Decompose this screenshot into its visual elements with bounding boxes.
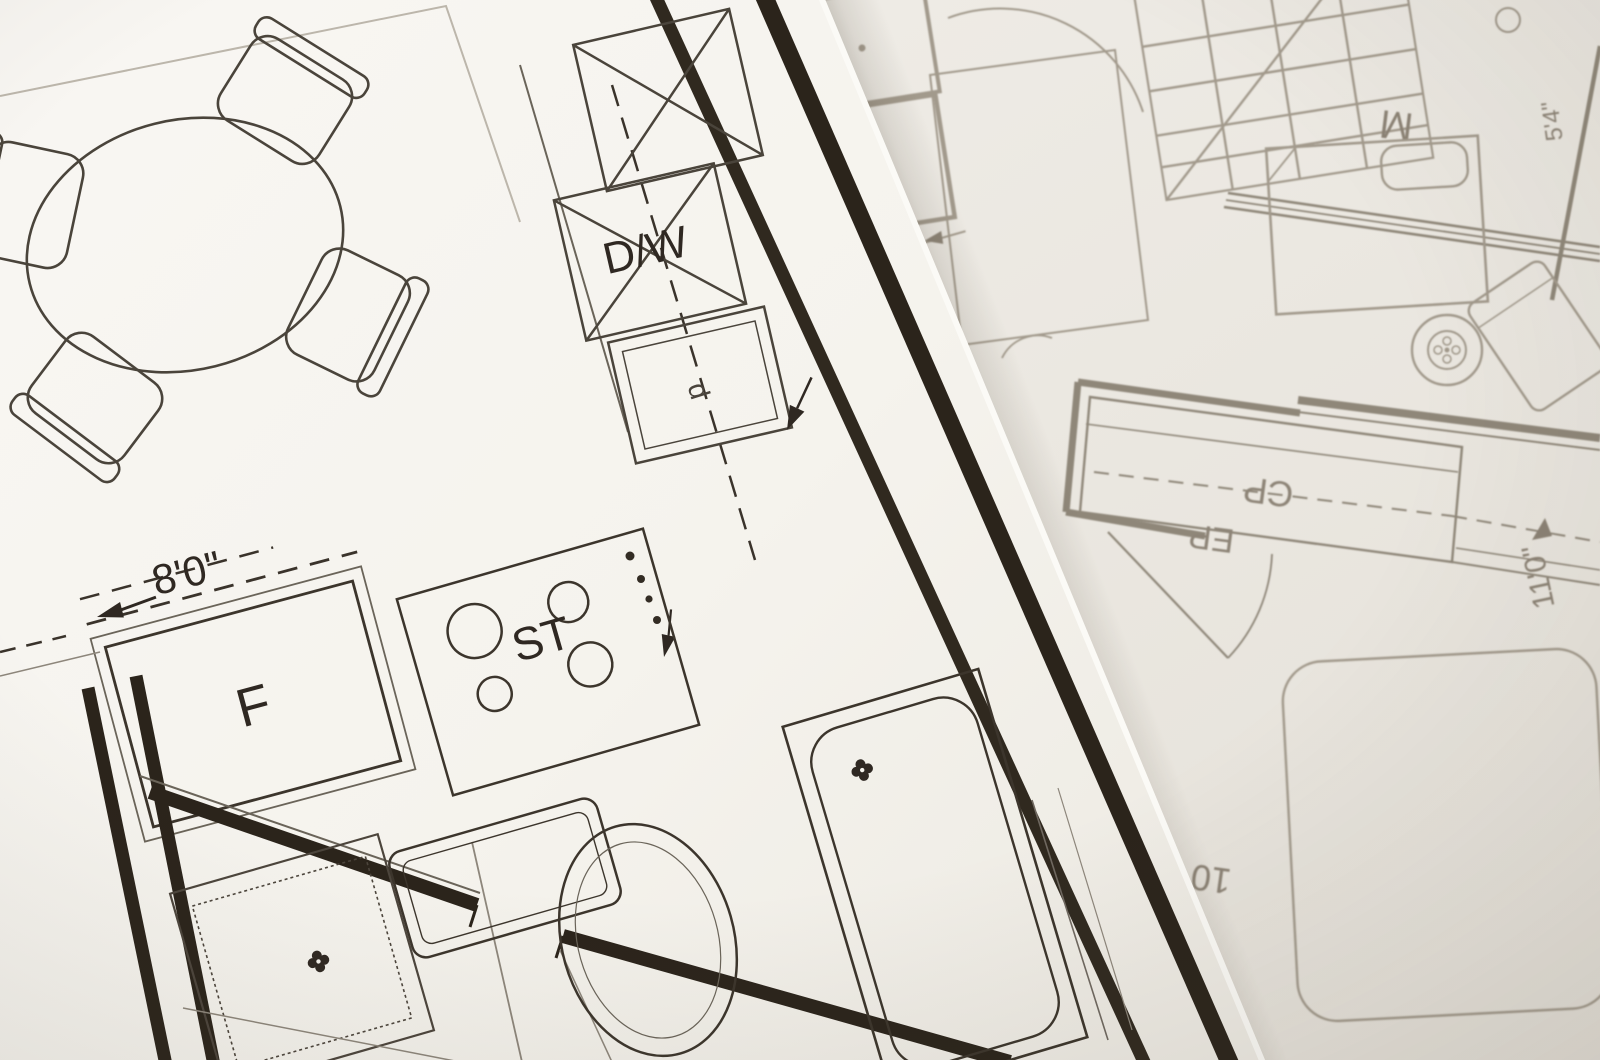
dim-text-5-4: 5'4" [1536, 99, 1568, 142]
blueprint-scene: b 6'0" M 5'4" [0, 0, 1600, 1060]
blueprint-photo: b 6'0" M 5'4" [0, 0, 1600, 1060]
room-label-cp: CP [1241, 469, 1296, 516]
